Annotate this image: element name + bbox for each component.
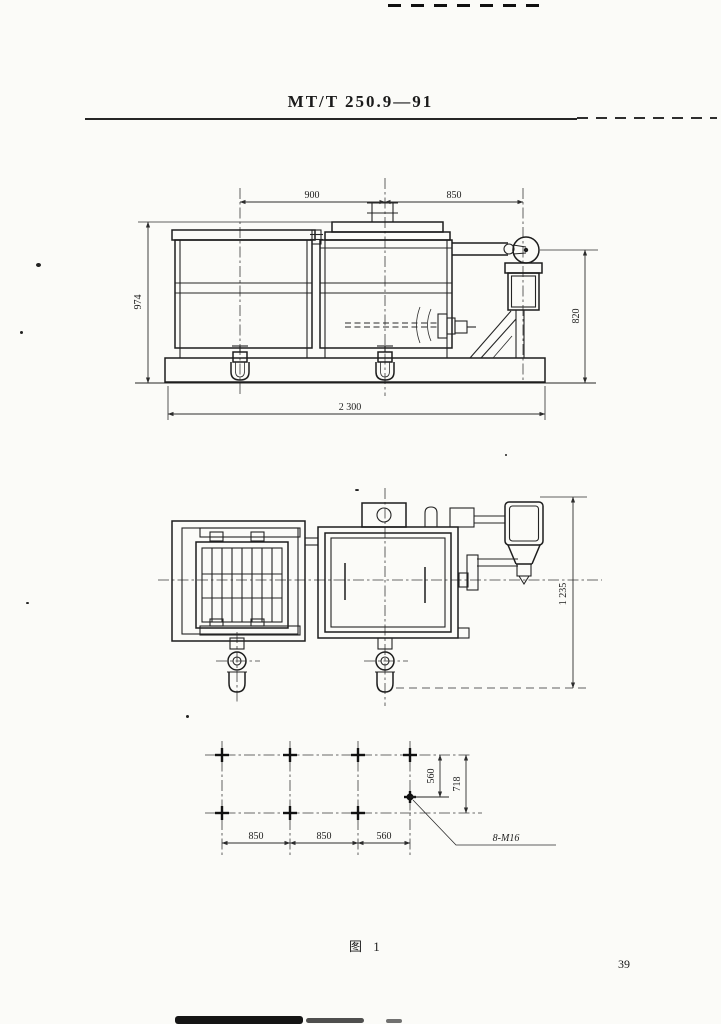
left-tank [172,230,315,358]
scan-artifact [175,1016,303,1024]
scan-artifact [306,1018,364,1023]
dimension-lines: 900 850 974 820 2 300 [133,190,598,420]
dim-label-850-a: 850 [249,831,264,842]
anchor-bolt-marks [215,748,417,820]
dim-label-560-inner: 560 [426,769,437,784]
inlet-box [362,503,437,527]
scan-artifact [386,1019,402,1023]
drive-assembly [452,237,542,358]
dim-label-850: 850 [447,190,462,201]
header-rule-dashed [577,117,717,119]
dim-label-560-b: 560 [377,831,392,842]
page-number: 39 [618,957,630,972]
plan-view-drawing: 1 235 [150,480,610,710]
right-tank [320,203,452,358]
drain-valve [231,346,249,380]
dim-label-718: 718 [452,777,463,792]
dim-label-850-b: 850 [317,831,332,842]
machine-base [165,358,545,382]
grating-assembly [172,521,305,641]
dim-label-900: 900 [305,190,320,201]
header-rule [85,118,577,120]
dim-label-1235: 1 235 [558,583,569,606]
scan-artifact [36,263,41,267]
dim-label-820: 820 [571,309,582,324]
scanned-document-page: MT/T 250.9—91 [0,0,721,1024]
scan-artifact [20,331,23,334]
tank-connector [310,230,323,244]
scan-artifact [388,4,546,7]
dimension-lines: 560 718 [426,755,466,813]
dimension-lines: 850 850 560 [222,831,410,843]
bolt-callout-label: 8-M16 [493,833,520,844]
scan-artifact [26,602,29,604]
scan-artifact [186,715,189,718]
mixing-tank-plan [318,527,469,638]
motor-assembly [450,502,543,590]
figure-caption: 图 1 [349,936,384,955]
scan-artifact [505,454,507,456]
callout-leader [413,800,556,845]
agitator-shaft [345,307,476,343]
dim-label-2300: 2 300 [339,402,362,413]
dim-label-974: 974 [133,295,144,310]
front-elevation-drawing: 900 850 974 820 2 300 [120,170,620,440]
foundation-bolt-plan-drawing: 560 718 8-M16 850 850 560 [190,735,560,865]
standard-number: MT/T 250.9—91 [0,92,721,112]
